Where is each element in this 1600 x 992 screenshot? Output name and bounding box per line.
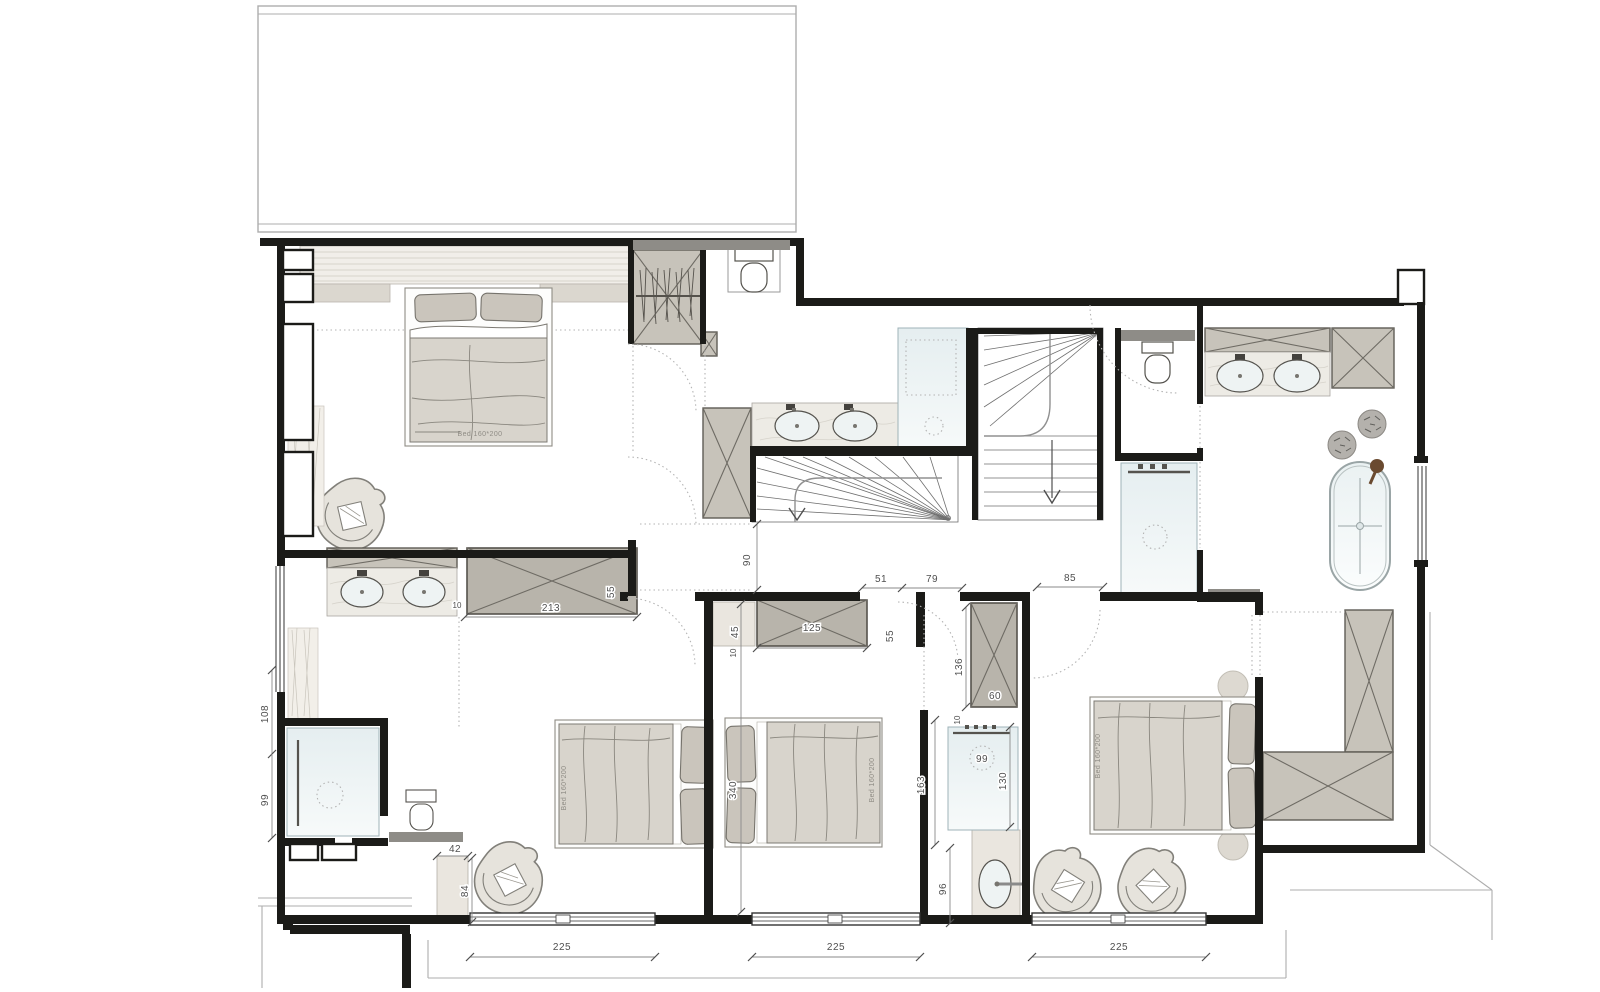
dim-room-340: 340 [728, 781, 739, 799]
dim-left-108: 108 [260, 705, 271, 723]
main-bathroom [1205, 328, 1394, 599]
dim-niche-84: 84 [460, 885, 471, 897]
dim-wardrobe-136: 136 [954, 658, 965, 676]
dim-seg-79: 79 [926, 574, 938, 585]
shower-2 [287, 728, 379, 836]
curtain [288, 628, 318, 720]
dim-shower-163: 163 [916, 776, 927, 794]
wc-right [1142, 342, 1173, 383]
dim-niche-42: 42 [449, 844, 461, 855]
dim-niche-45: 45 [730, 626, 741, 638]
window-left-2 [274, 566, 286, 692]
dim-hall-90: 90 [742, 554, 753, 566]
dim-gap-10: 10 [453, 601, 462, 610]
bedroom-4: Bed 160*200 [1034, 671, 1258, 928]
niche [713, 602, 755, 646]
window-bath-right [1414, 456, 1428, 567]
toilet-tank [1142, 342, 1173, 353]
main-staircase [752, 455, 958, 522]
hall-wardrobe [703, 408, 751, 518]
dim-window-1: 225 [553, 942, 571, 953]
window-bottom-3 [1032, 913, 1206, 925]
dim-sink-96: 96 [938, 883, 949, 895]
dim-gap-10c: 10 [953, 715, 962, 724]
dim-landing-85: 85 [1064, 573, 1076, 584]
upper-staircase [978, 328, 1103, 520]
double-bed-2: Bed 160*200 [555, 720, 713, 848]
egg-chair [1034, 848, 1101, 921]
dim-window-2: 225 [827, 942, 845, 953]
double-bed-3: Bed 160*200 [725, 718, 882, 847]
dim-gap-10b: 10 [729, 648, 738, 657]
dim-seg-51: 51 [875, 574, 887, 585]
dim-wardrobe-60: 60 [989, 691, 1001, 702]
window-bottom-2 [752, 913, 920, 925]
shower-right [1121, 463, 1197, 597]
bed-size-label: Bed 160*200 [869, 758, 876, 803]
dressing-wardrobe [1263, 610, 1393, 820]
dim-shower-130: 130 [998, 772, 1009, 790]
double-bed-master: Bed 160*200 [405, 288, 552, 446]
vanity-2 [327, 548, 457, 616]
wc-top [728, 244, 780, 292]
stool [1358, 410, 1386, 438]
bed-size-label: Bed 160*200 [458, 431, 503, 438]
bedroom-2: Bed 160*200 [287, 548, 713, 927]
master-shower [898, 328, 968, 452]
dim-shower-99: 99 [976, 754, 988, 765]
floor-plan: Bed 160*200 [0, 0, 1600, 992]
bathtub [1330, 459, 1390, 590]
toilet-bowl [741, 263, 767, 292]
toilet-2 [389, 790, 463, 842]
window-bottom-1 [470, 913, 655, 925]
egg-chair [463, 830, 558, 927]
stool [1328, 431, 1356, 459]
dim-wardrobe-125: 125 [803, 623, 821, 634]
bed-size-label: Bed 160*200 [561, 766, 568, 811]
master-bedroom: Bed 160*200 [288, 246, 630, 564]
dim-depth-55b: 55 [885, 630, 896, 642]
dim-window-3: 225 [1110, 942, 1128, 953]
bed-size-label: Bed 160*200 [1095, 734, 1102, 779]
double-bed-4: Bed 160*200 [1090, 697, 1258, 834]
dim-wardrobe-213: 213 [542, 603, 560, 614]
dim-left-99: 99 [260, 794, 271, 806]
toilet-bowl [1145, 355, 1170, 383]
dim-depth-55: 55 [606, 586, 617, 598]
master-vanity [752, 403, 898, 451]
